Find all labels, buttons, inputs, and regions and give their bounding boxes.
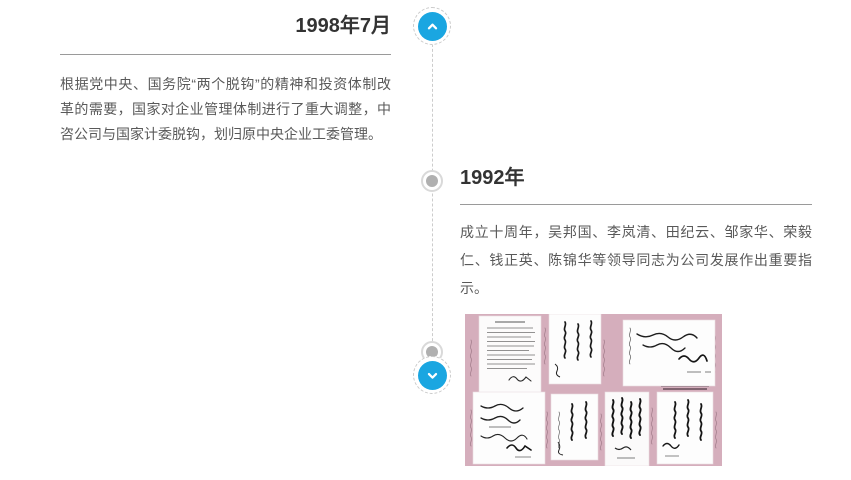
company-history-timeline: 1998年7月 根据党中央、国务院“两个脱钩”的精神和投资体制改革的需要，国家对…: [0, 0, 851, 480]
timeline-scroll-up-button[interactable]: [413, 7, 451, 45]
entry-divider: [460, 204, 812, 205]
leaders-inscriptions-photo: [465, 314, 722, 466]
timeline-scroll-down-button[interactable]: [413, 356, 451, 394]
timeline-dashed-line: [432, 24, 433, 376]
timeline-entry-1992: 1992年 成立十周年，吴邦国、李岚清、田纪云、邹家华、荣毅仁、钱正英、陈锦华等…: [460, 165, 812, 466]
chevron-down-icon: [418, 361, 447, 390]
entry-year-1998: 1998年7月: [60, 0, 391, 39]
timeline-dot: [421, 170, 443, 192]
entry-text-1998: 根据党中央、国务院“两个脱钩”的精神和投资体制改革的需要，国家对企业管理体制进行…: [60, 72, 391, 147]
entry-year-1992: 1992年: [460, 165, 812, 191]
entry-text-1992: 成立十周年，吴邦国、李岚清、田纪云、邹家华、荣毅仁、钱正英、陈锦华等领导同志为公…: [460, 218, 812, 302]
timeline-dot-core: [426, 175, 438, 187]
timeline-entry-1998: 1998年7月 根据党中央、国务院“两个脱钩”的精神和投资体制改革的需要，国家对…: [60, 0, 391, 147]
chevron-up-icon: [418, 12, 447, 41]
entry-divider: [60, 54, 391, 55]
